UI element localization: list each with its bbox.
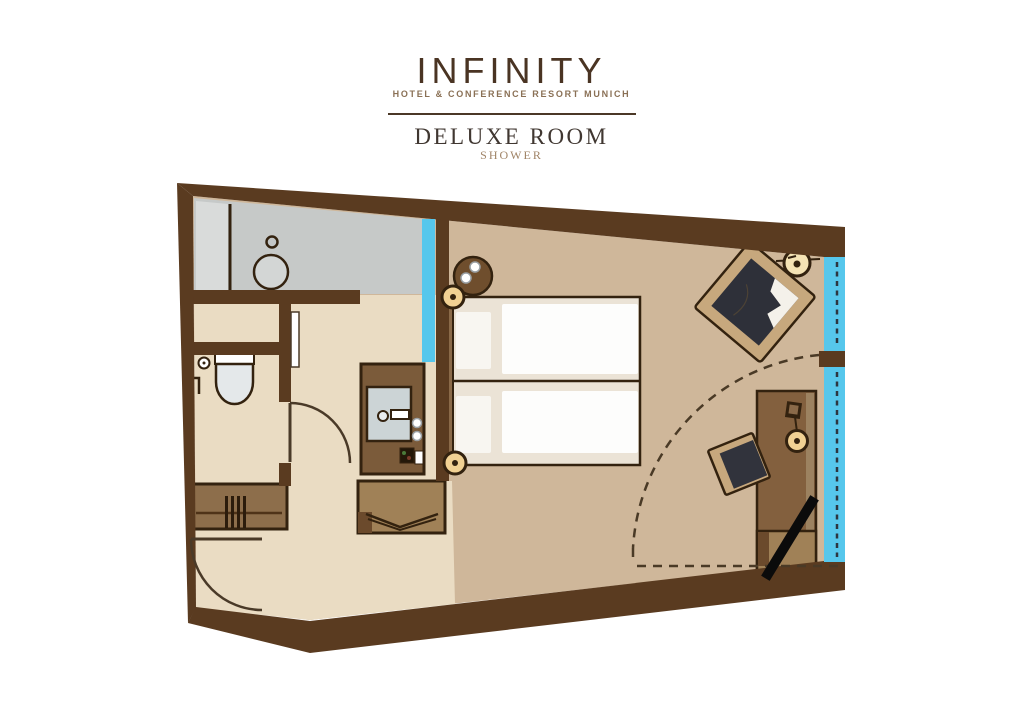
luggage-rack	[358, 481, 445, 533]
faucet-icon	[391, 410, 409, 419]
coffee-btn-red	[407, 456, 411, 460]
hanger-4	[243, 496, 246, 528]
shower-glass-panel	[422, 219, 435, 362]
duvet-bottom	[502, 391, 638, 453]
duvet-top	[502, 304, 638, 374]
glass-2	[413, 432, 422, 441]
coffee-machine-icon	[400, 448, 414, 463]
bathroom-bedroom-wall	[436, 216, 449, 481]
toilet-bowl-icon	[216, 364, 253, 404]
hanger-3	[237, 496, 240, 528]
washbasin-vanity	[361, 364, 424, 474]
bedside-glass-2	[470, 262, 480, 272]
bedside-lamp-top-dot	[450, 294, 456, 300]
shower-drain-icon	[254, 255, 288, 289]
shower-bench	[196, 201, 228, 293]
hanger-1	[225, 496, 228, 528]
wc-east-wall	[279, 302, 291, 402]
floor-lamp-bulb	[794, 261, 801, 268]
desk-cabinet-side	[758, 532, 769, 566]
shower-south-wall	[187, 290, 360, 304]
bedside-lamp-bottom-dot	[452, 460, 458, 466]
coffee-cup	[415, 451, 423, 464]
shower-head-icon	[267, 237, 278, 248]
floorplan	[0, 0, 1023, 721]
hanger-2	[231, 496, 234, 528]
window-mullion	[819, 351, 845, 367]
toilet-paper-dot	[203, 362, 206, 365]
glass-1	[413, 419, 422, 428]
sliding-door-leaf	[291, 312, 299, 367]
wc-north-wall	[187, 342, 279, 355]
coffee-btn-green	[402, 451, 406, 455]
desk-lamp-dot	[794, 438, 800, 444]
wardrobe	[191, 484, 287, 529]
telephone-icon	[785, 401, 802, 419]
window-lower	[824, 367, 845, 562]
basin-drain	[378, 411, 388, 421]
window-upper	[824, 257, 845, 351]
double-bed	[444, 297, 640, 465]
door-stub-wall	[279, 463, 291, 486]
pillow-top	[456, 312, 491, 369]
bedside-glass-1	[461, 273, 471, 283]
pillow-bottom	[456, 396, 491, 453]
